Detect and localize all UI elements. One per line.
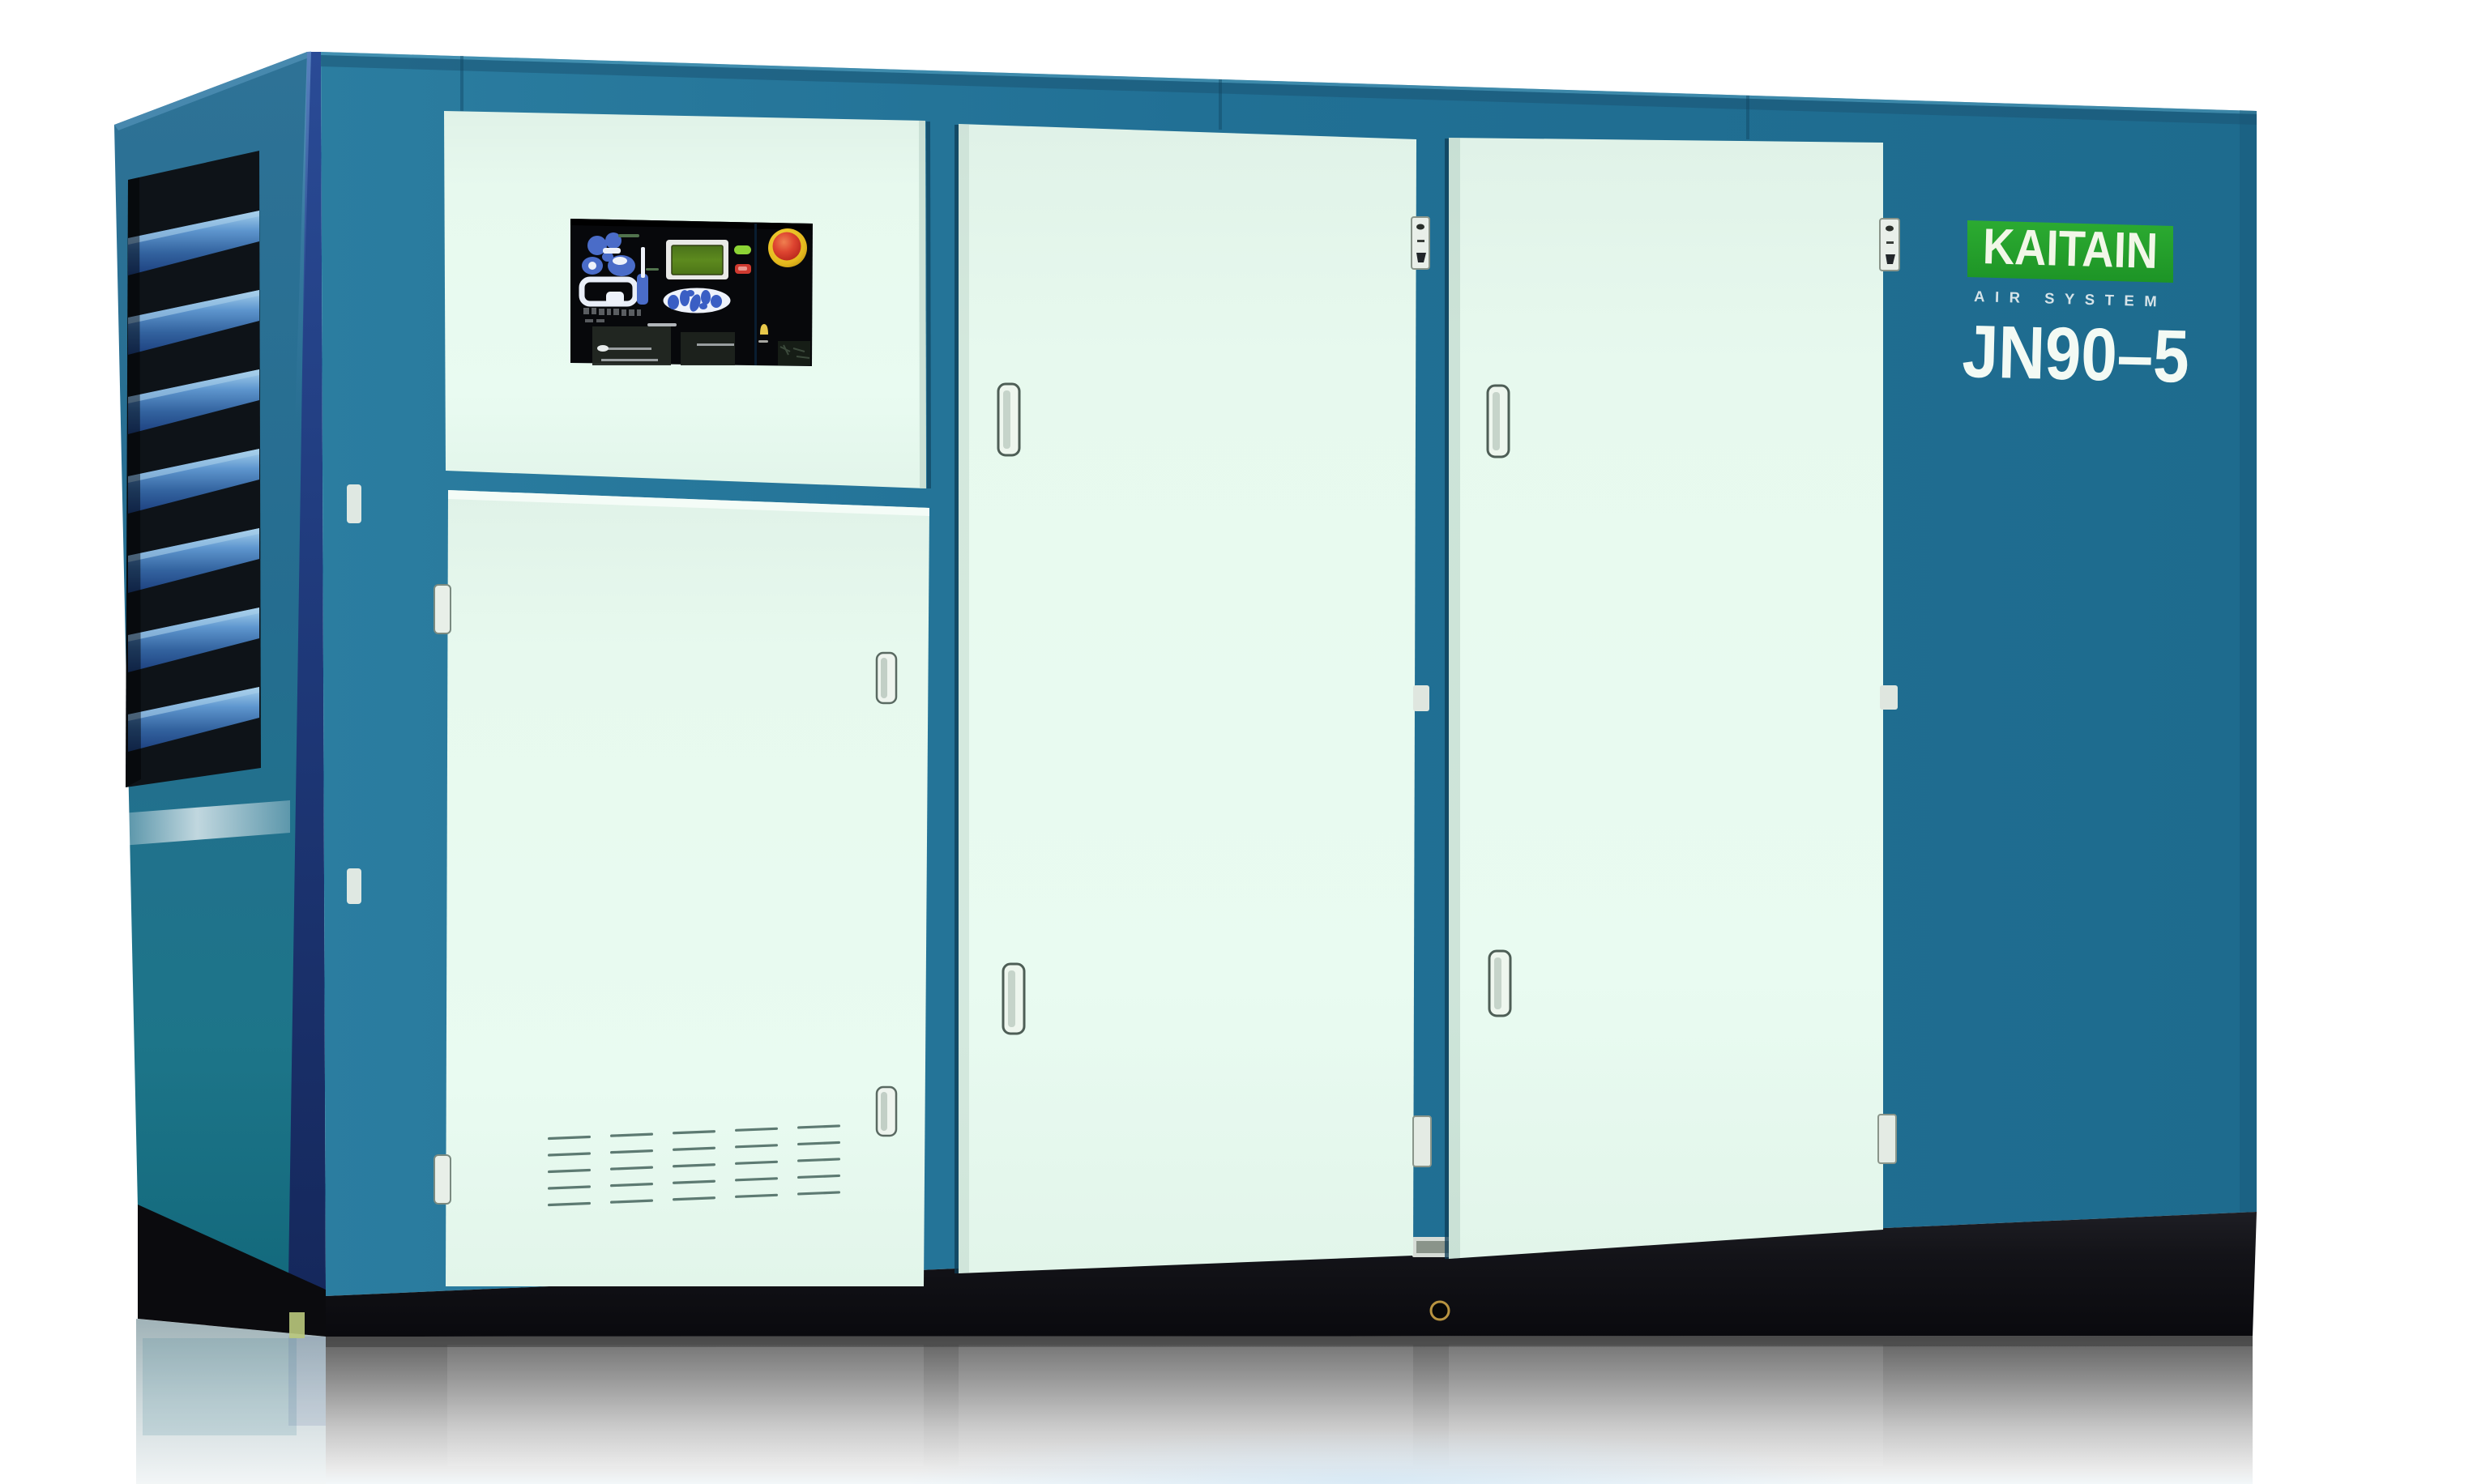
svg-text:KAITAIN: KAITAIN bbox=[1982, 219, 2159, 279]
svg-text:JN90–5: JN90–5 bbox=[1962, 310, 2190, 399]
